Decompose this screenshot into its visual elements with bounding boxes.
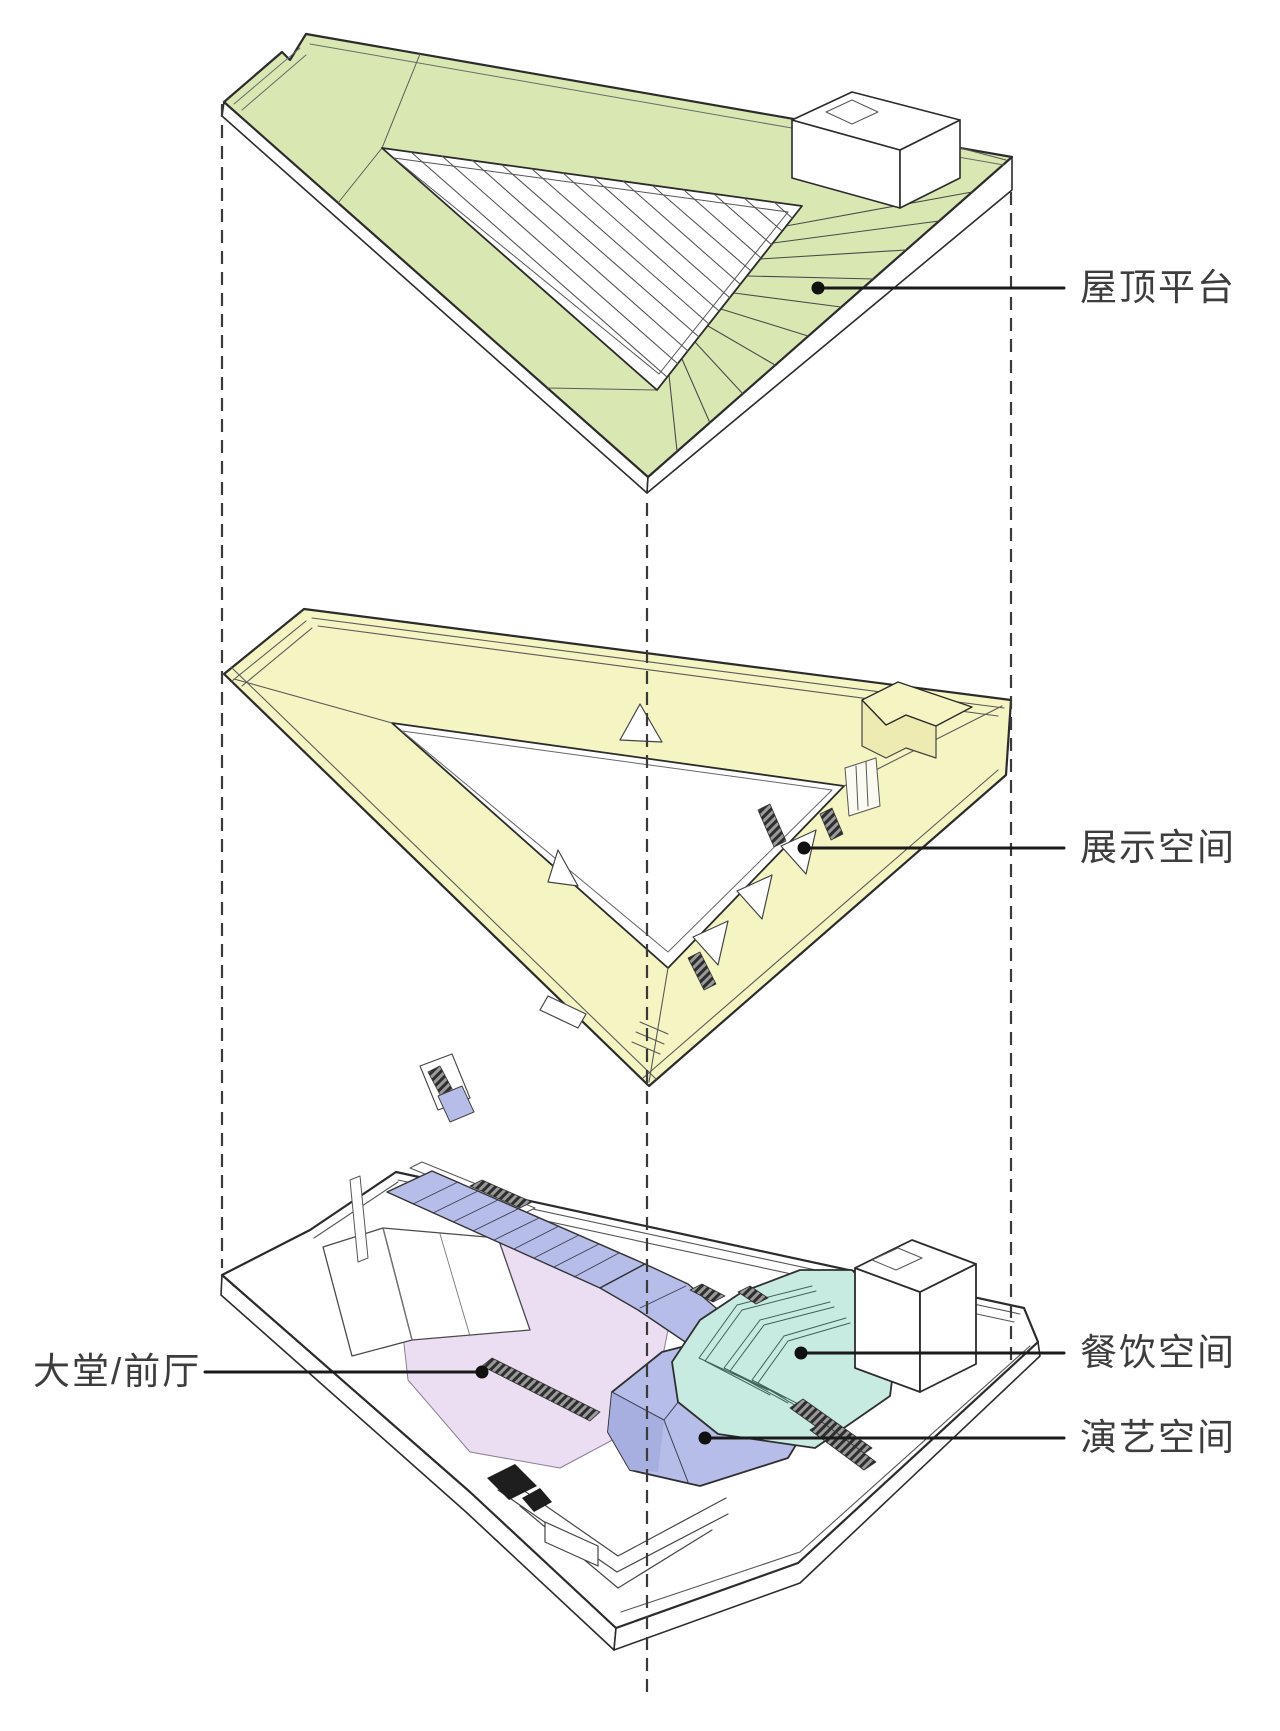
leader-dot-performance (699, 1432, 712, 1445)
ground-box-volume (855, 1240, 976, 1392)
leader-dot-dining (795, 1347, 808, 1360)
leader-dot-exhibition (798, 842, 811, 855)
callout-roof-terrace: 屋顶平台 (1080, 266, 1236, 310)
callout-performance-space: 演艺空间 (1080, 1416, 1236, 1460)
leader-dot-roof (812, 282, 825, 295)
callout-exhibition-space: 展示空间 (1080, 826, 1236, 870)
leader-dot-lobby (476, 1366, 489, 1379)
roof-level-group (222, 34, 1012, 493)
callout-lobby-foyer: 大堂/前厅 (33, 1350, 201, 1394)
exploded-axon-canvas: 屋顶平台 展示空间 餐饮空间 演艺空间 大堂/前厅 (0, 0, 1280, 1731)
callout-dining-space: 餐饮空间 (1080, 1331, 1236, 1375)
exhibition-stair-recess (845, 758, 880, 816)
